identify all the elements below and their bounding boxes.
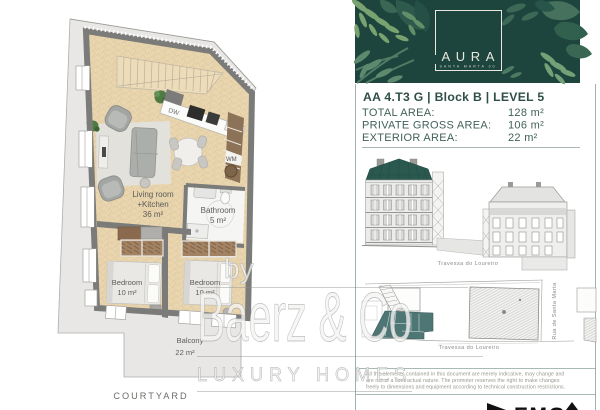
svg-text:10 m²: 10 m²: [117, 288, 137, 297]
svg-text:22 m²: 22 m²: [175, 348, 195, 357]
svg-text:AA 4.T3 G | Block B | LEVEL 5: AA 4.T3 G | Block B | LEVEL 5: [363, 90, 544, 104]
svg-text:22 m²: 22 m²: [508, 132, 538, 144]
svg-text:128 m²: 128 m²: [508, 107, 544, 119]
svg-text:Living room: Living room: [132, 190, 174, 199]
svg-text:106 m²: 106 m²: [508, 120, 544, 132]
svg-text:Bedroom: Bedroom: [112, 278, 142, 287]
svg-text:Baerz & Co: Baerz & Co: [197, 278, 412, 356]
svg-text:Travessa do Loureiro: Travessa do Loureiro: [439, 345, 500, 351]
svg-text:5 m²: 5 m²: [210, 216, 226, 225]
svg-text:WM: WM: [226, 157, 237, 163]
svg-text:EXTERIOR AREA:: EXTERIOR AREA:: [362, 132, 458, 144]
svg-text:36 m²: 36 m²: [143, 210, 164, 219]
svg-text:EMG: EMG: [514, 404, 566, 410]
svg-text:Bathroom: Bathroom: [201, 206, 236, 215]
svg-text:Rua de Santa Marta: Rua de Santa Marta: [552, 282, 558, 340]
svg-text:COURTYARD: COURTYARD: [113, 391, 188, 401]
svg-text:PRIVATE GROSS AREA:: PRIVATE GROSS AREA:: [362, 120, 491, 132]
svg-text:SANTA MARTA 30: SANTA MARTA 30: [440, 65, 497, 69]
svg-text:TOTAL AREA:: TOTAL AREA:: [362, 107, 435, 119]
svg-text:+Kitchen: +Kitchen: [137, 200, 168, 209]
svg-text:AURA: AURA: [442, 49, 501, 64]
svg-text:Travessa do Loureiro: Travessa do Loureiro: [438, 261, 499, 267]
svg-text:LUXURY HOMES: LUXURY HOMES: [197, 365, 412, 386]
